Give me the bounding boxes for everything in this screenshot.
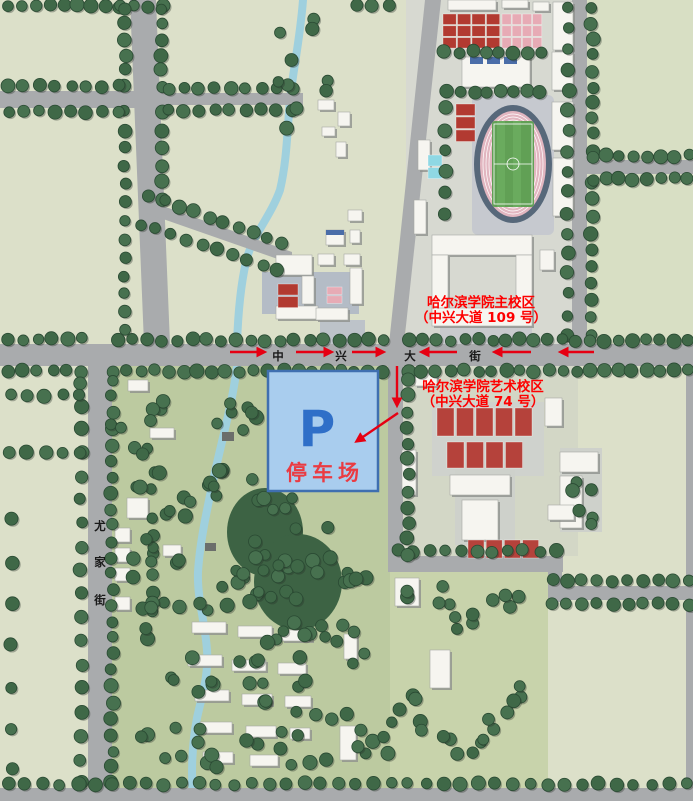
street-char-xing: 兴: [335, 349, 347, 363]
street-char-jia: 家: [94, 555, 106, 569]
street-char-jie2: 街: [93, 593, 106, 607]
street-char-jie: 街: [468, 349, 481, 363]
street-char-zhong: 中: [272, 349, 284, 363]
parking-symbol: P: [299, 400, 336, 458]
campus-art-label-line2: （中兴大道 74 号）: [422, 393, 545, 410]
campus-map: P 停车场 中 兴 大 街 尤 家 街 哈尔滨学院主校区 （中兴大道 109 号…: [0, 0, 693, 801]
parking-name-label: 停车场: [286, 461, 364, 485]
parking-lot: P 停车场: [268, 371, 378, 491]
road-bottom: [0, 788, 693, 801]
road-right-edge: [686, 344, 693, 788]
campus-art-label-line1: 哈尔滨学院艺术校区: [422, 378, 544, 395]
campus-main-label-line2: （中兴大道 109 号）: [415, 309, 547, 326]
campus-main-label-line1: 哈尔滨学院主校区: [427, 294, 535, 311]
street-char-da: 大: [404, 349, 416, 363]
map-canvas: P 停车场 中 兴 大 街 尤 家 街 哈尔滨学院主校区 （中兴大道 109 号…: [0, 0, 693, 801]
street-char-you: 尤: [93, 519, 106, 533]
stadium: [474, 105, 552, 223]
